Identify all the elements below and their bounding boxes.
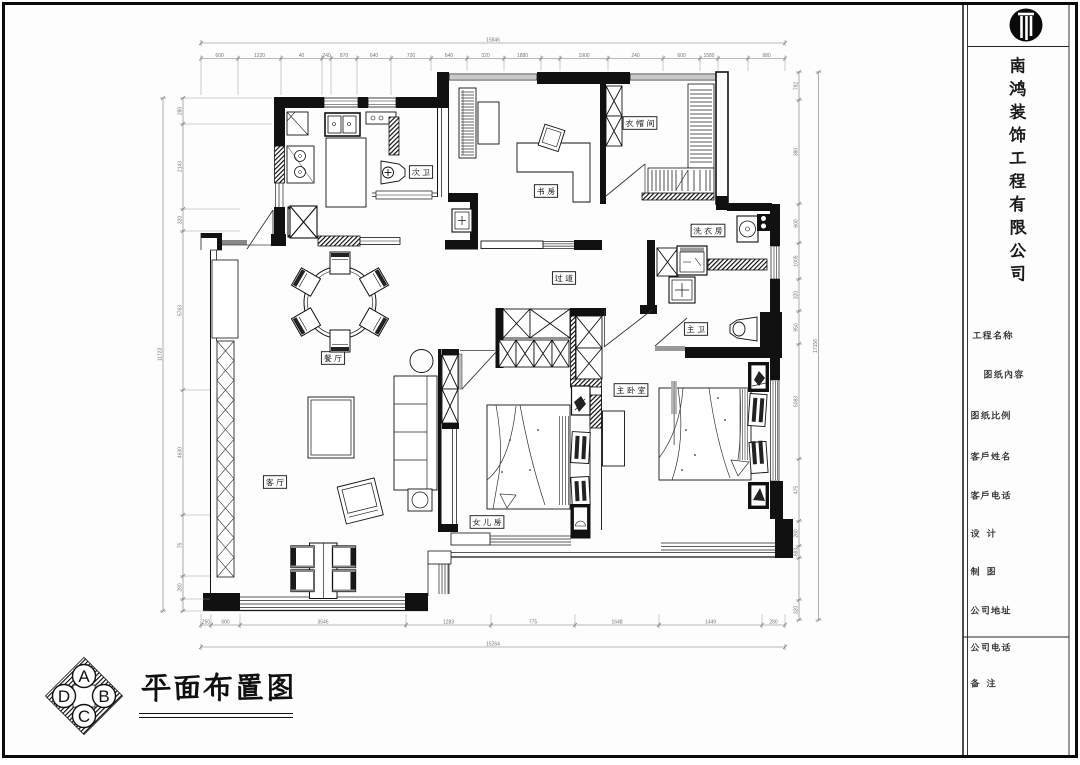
svg-text:2143: 2143	[178, 161, 184, 172]
svg-text:D: D	[58, 687, 70, 706]
svg-text:720: 720	[407, 53, 416, 59]
svg-text:640: 640	[445, 53, 454, 59]
svg-text:C: C	[78, 707, 90, 726]
svg-text:15846: 15846	[486, 38, 500, 44]
svg-text:600: 600	[215, 53, 224, 59]
svg-text:280: 280	[178, 583, 184, 592]
svg-text:980: 980	[762, 53, 771, 59]
svg-text:320: 320	[481, 53, 490, 59]
svg-text:4630: 4630	[178, 447, 184, 458]
svg-text:782: 782	[794, 82, 800, 91]
svg-text:320: 320	[178, 216, 184, 225]
svg-text:240: 240	[631, 53, 640, 59]
svg-text:1283: 1283	[443, 620, 454, 626]
svg-text:280: 280	[769, 620, 778, 626]
svg-text:5763: 5763	[178, 305, 184, 316]
svg-text:640: 640	[370, 53, 379, 59]
svg-text:1005: 1005	[794, 255, 800, 266]
svg-text:15264: 15264	[486, 642, 500, 648]
svg-text:320: 320	[794, 291, 800, 300]
svg-text:280: 280	[178, 107, 184, 116]
svg-text:1648: 1648	[611, 620, 622, 626]
svg-text:600: 600	[221, 620, 230, 626]
svg-text:11723: 11723	[158, 348, 164, 362]
svg-text:380: 380	[794, 148, 800, 157]
svg-text:600: 600	[677, 53, 686, 59]
svg-text:17156: 17156	[813, 339, 819, 353]
svg-text:40: 40	[299, 53, 305, 59]
svg-text:250: 250	[202, 620, 211, 626]
svg-text:870: 870	[340, 53, 349, 59]
svg-text:3546: 3546	[317, 620, 328, 626]
svg-text:A: A	[78, 667, 90, 686]
svg-text:1220: 1220	[254, 53, 265, 59]
svg-text:5083: 5083	[794, 396, 800, 407]
svg-text:280: 280	[794, 529, 800, 538]
svg-text:1900: 1900	[578, 53, 589, 59]
svg-text:75: 75	[178, 543, 184, 549]
svg-text:1449: 1449	[705, 620, 716, 626]
svg-text:950: 950	[794, 323, 800, 332]
svg-text:775: 775	[529, 620, 538, 626]
svg-text:1580: 1580	[703, 53, 714, 59]
svg-text:1880: 1880	[517, 53, 528, 59]
svg-text:240: 240	[322, 53, 331, 59]
svg-text:475: 475	[794, 486, 800, 495]
svg-text:883: 883	[794, 548, 800, 557]
svg-text:600: 600	[794, 219, 800, 228]
svg-text:B: B	[98, 687, 109, 706]
svg-text:320: 320	[794, 606, 800, 615]
